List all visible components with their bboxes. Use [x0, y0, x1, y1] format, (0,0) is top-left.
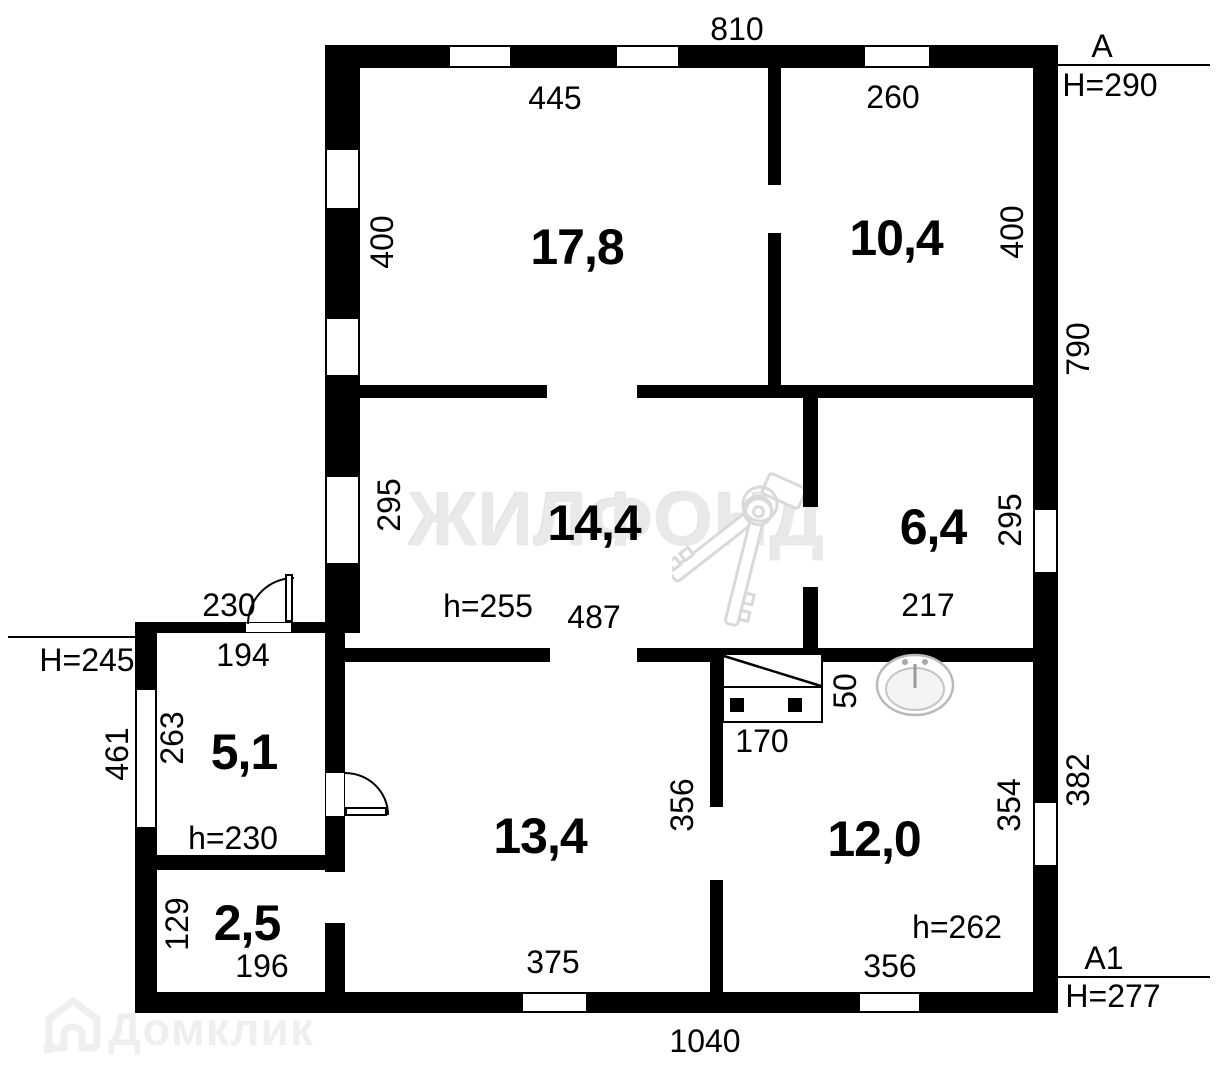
room-area-12-0: 12,0 — [827, 814, 920, 864]
window-left-1 — [325, 148, 360, 210]
domclick-house-icon — [42, 994, 104, 1056]
height-mark-h255: h=255 — [443, 590, 533, 622]
wall-exterior-top — [325, 45, 1058, 68]
room-area-6-4: 6,4 — [900, 502, 967, 552]
dimension-194: 194 — [216, 639, 269, 671]
dimension-356-middle: 356 — [666, 778, 698, 831]
dimension-263: 263 — [156, 711, 188, 764]
dimension-382: 382 — [1062, 753, 1094, 806]
window-bottom-2 — [858, 992, 921, 1013]
height-mark-h230: h=230 — [188, 822, 278, 854]
dimension-790: 790 — [1062, 322, 1094, 375]
axis-mark-a1: A1 — [1084, 942, 1123, 974]
dimension-1040: 1040 — [669, 1025, 740, 1057]
wall-h1-seg1 — [360, 385, 547, 398]
room-area-14-4: 14,4 — [547, 498, 640, 548]
sink-fixture — [875, 652, 955, 718]
height-mark-h290: H=290 — [1062, 69, 1157, 101]
wall-v1-seg2 — [768, 233, 781, 385]
datum-line-a — [1058, 64, 1210, 66]
room-area-10-4: 10,4 — [849, 213, 942, 263]
wall-h1-seg2 — [637, 385, 1033, 398]
wall-annex-top-seg1 — [135, 622, 245, 633]
dimension-356-bottom: 356 — [863, 950, 916, 982]
floor-plan: ЖИЛФОНД Домклик — [0, 0, 1223, 1080]
keys-watermark-icon — [672, 462, 812, 672]
room-area-2-5: 2,5 — [214, 898, 281, 948]
wall-v2-seg1 — [803, 398, 818, 507]
height-mark-h277: H=277 — [1065, 980, 1160, 1012]
dimension-461: 461 — [101, 727, 133, 780]
room-area-13-4: 13,4 — [493, 811, 586, 861]
wall-left-lower-seg1 — [325, 633, 345, 772]
dimension-400-left: 400 — [366, 215, 398, 268]
dimension-50: 50 — [829, 673, 861, 709]
dimension-129: 129 — [161, 897, 193, 950]
dimension-375: 375 — [526, 946, 579, 978]
window-left-3 — [325, 475, 360, 565]
wall-annex-top-seg2 — [292, 622, 345, 633]
wall-v2-seg2 — [803, 587, 818, 648]
axis-mark-a: A — [1091, 30, 1112, 62]
dimension-487: 487 — [567, 601, 620, 633]
window-left-2 — [325, 317, 360, 377]
dimension-295-left: 295 — [373, 478, 405, 531]
dimension-230: 230 — [202, 589, 255, 621]
window-top-1 — [448, 45, 512, 68]
window-top-3 — [863, 45, 931, 68]
dimension-295-right: 295 — [994, 493, 1026, 546]
window-right-1 — [1033, 508, 1058, 574]
dimension-260: 260 — [866, 81, 919, 113]
window-right-2 — [1033, 801, 1058, 867]
wall-v1-seg1 — [768, 68, 781, 185]
wall-h2-seg1 — [345, 648, 550, 662]
room-area-17-8: 17,8 — [530, 222, 623, 272]
wall-h2-seg2 — [637, 648, 1033, 662]
dimension-196: 196 — [235, 950, 288, 982]
dimension-217: 217 — [901, 589, 954, 621]
dimension-170: 170 — [735, 725, 788, 757]
height-mark-h262: h=262 — [912, 911, 1002, 943]
dimension-400-right: 400 — [996, 205, 1028, 258]
window-top-2 — [615, 45, 680, 68]
door-opening-room5-1 — [325, 772, 345, 817]
wardrobe-fixture — [722, 653, 823, 723]
dimension-810: 810 — [710, 13, 763, 45]
dimension-354: 354 — [993, 778, 1025, 831]
wall-v3-seg2 — [710, 880, 723, 992]
door-leaf-room5-1 — [345, 807, 387, 816]
height-mark-h245: H=245 — [39, 644, 134, 676]
window-bottom-1 — [521, 992, 588, 1013]
wall-annex-divider — [155, 855, 345, 870]
door-leaf-annex-entry — [285, 574, 293, 622]
wall-left-lower-seg3 — [325, 923, 345, 992]
datum-line-h245 — [8, 636, 135, 638]
dimension-445: 445 — [528, 82, 581, 114]
room-area-5-1: 5,1 — [211, 727, 278, 777]
